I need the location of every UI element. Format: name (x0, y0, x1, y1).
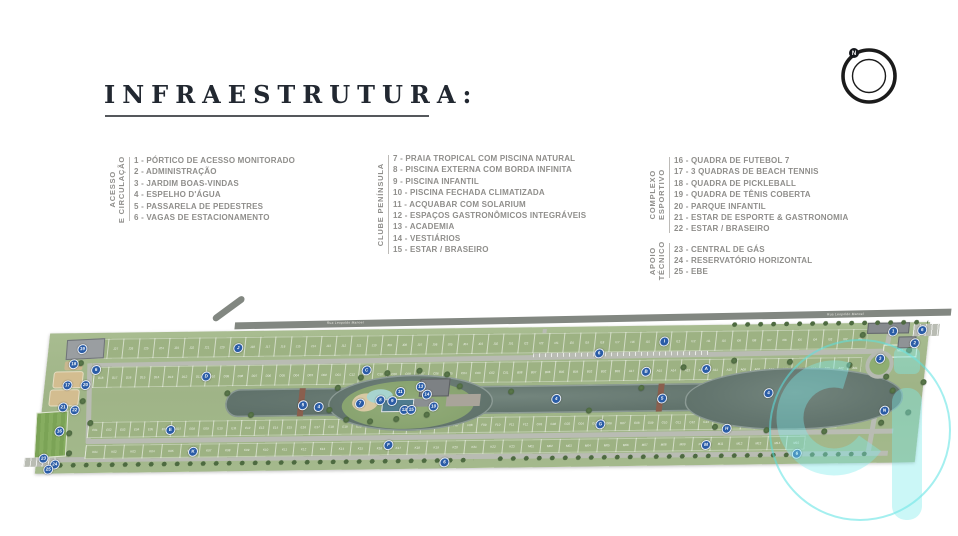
plan-marker-5: 5 (297, 400, 308, 410)
plan-marker-n: N (879, 406, 890, 416)
legend-item: 6 - VAGAS DE ESTACIONAMENTO (134, 212, 295, 223)
plan-marker-17: 17 (62, 380, 73, 390)
plan-marker-d: D (201, 371, 212, 381)
legend-item: 2 - ADMINISTRAÇÃO (134, 166, 295, 177)
plan-marker-23: 23 (38, 454, 49, 464)
legend-group-label: TÉCNICO (657, 241, 666, 280)
plan-marker-6: 6 (91, 365, 102, 375)
plan-marker-20: 20 (80, 380, 91, 390)
plan-marker-m: M (700, 440, 711, 450)
legend-divider (388, 155, 389, 254)
plan-marker-8: 8 (375, 395, 386, 405)
legend-group-label: E CIRCULAÇÃO (117, 156, 126, 223)
plan-marker-e: E (165, 425, 176, 435)
plan-markers: 1236666644455789101112131415161718192021… (23, 294, 927, 474)
legend-group-label: APOIO (648, 247, 657, 275)
legend-item: 23 - CENTRAL DE GÁS (674, 244, 812, 255)
page-title: INFRAESTRUTURA: (104, 80, 478, 109)
plan-marker-h: H (721, 424, 732, 434)
legend-item: 9 - PISCINA INFANTIL (393, 176, 586, 187)
plan-marker-7: 7 (354, 398, 365, 408)
plan-marker-14: 14 (421, 390, 432, 400)
plan-marker-18: 18 (68, 359, 79, 369)
legend-item: 21 - ESTAR DE ESPORTE & GASTRONOMIA (674, 212, 848, 223)
legend-group-acesso: ACESSOE CIRCULAÇÃO 1 - PÓRTICO DE ACESSO… (108, 155, 295, 223)
plan-marker-22: 22 (69, 405, 80, 415)
plan-marker-16: 16 (54, 426, 65, 436)
legend-group-vertical-label: CLUBE PENÍNSULA (376, 153, 385, 256)
plan-marker-21: 21 (58, 402, 69, 412)
legend-item: 11 - ACQUABAR COM SOLARIUM (393, 199, 586, 210)
legend-item: 22 - ESTAR / BRASEIRO (674, 223, 848, 234)
legend-item: 19 - QUADRA DE TÊNIS COBERTA (674, 189, 848, 200)
plan-marker-5: 5 (657, 393, 668, 403)
plan-marker-b: B (641, 367, 652, 377)
legend-item: 20 - PARQUE INFANTIL (674, 201, 848, 212)
plan-marker-6: 6 (791, 449, 802, 459)
legend-item: 17 - 3 QUADRAS DE BEACH TENNIS (674, 166, 848, 177)
legend-items: 23 - CENTRAL DE GÁS24 - RESERVATÓRIO HOR… (674, 241, 812, 280)
legend-group-vertical-label: COMPLEXOESPORTIVO (648, 155, 666, 235)
legend-item: 7 - PRAIA TROPICAL COM PISCINA NATURAL (393, 153, 586, 164)
legend-group-label: ESPORTIVO (657, 169, 666, 220)
legend-item: 14 - VESTIÁRIOS (393, 233, 586, 244)
legend-item: 10 - PISCINA FECHADA CLIMATIZADA (393, 187, 586, 198)
plan-marker-6: 6 (594, 348, 605, 358)
plan-marker-g: G (595, 419, 606, 429)
plan-marker-15: 15 (406, 405, 417, 415)
legend-group-label: COMPLEXO (648, 170, 657, 219)
legend-item: 3 - JARDIM BOAS-VINDAS (134, 178, 295, 189)
legend-item: 8 - PISCINA EXTERNA COM BORDA INFINITA (393, 164, 586, 175)
plan-marker-19: 19 (77, 344, 88, 354)
plan-marker-j: J (233, 343, 244, 353)
plan-marker-f: F (383, 440, 394, 450)
legend-item: 5 - PASSARELA DE PEDESTRES (134, 201, 295, 212)
legend-divider (129, 157, 130, 221)
legend-item: 15 - ESTAR / BRASEIRO (393, 244, 586, 255)
title-underline (105, 115, 429, 117)
legend-group-clube: CLUBE PENÍNSULA 7 - PRAIA TROPICAL COM P… (376, 153, 586, 256)
plan-marker-2: 2 (909, 338, 920, 348)
plan-marker-4: 4 (551, 394, 562, 404)
legend-item: 1 - PÓRTICO DE ACESSO MONITORADO (134, 155, 295, 166)
legend-group-vertical-label: APOIOTÉCNICO (648, 241, 666, 280)
plan-marker-10: 10 (428, 401, 439, 411)
infrastructure-slide: INFRAESTRUTURA: ACESSOE CIRCULAÇÃO 1 - P… (0, 0, 958, 536)
legend-item: 13 - ACADEMIA (393, 221, 586, 232)
legend-item: 4 - ESPELHO D'ÁGUA (134, 189, 295, 200)
plan-marker-11: 11 (395, 387, 406, 397)
legend-divider (669, 157, 670, 233)
legend-item: 25 - EBE (674, 266, 812, 277)
legend-group-label: ACESSO (108, 171, 117, 207)
plan-marker-25: 25 (43, 465, 54, 475)
svg-text:N: N (852, 51, 856, 57)
legend-items: 1 - PÓRTICO DE ACESSO MONITORADO2 - ADMI… (134, 155, 295, 223)
tree-icon (920, 379, 927, 385)
legend-item: 16 - QUADRA DE FUTEBOL 7 (674, 155, 848, 166)
plan-marker-c: C (361, 365, 372, 375)
legend-item: 18 - QUADRA DE PICKLEBALL (674, 178, 848, 189)
legend-divider (669, 243, 670, 278)
plan-marker-k: K (187, 447, 198, 457)
plan-marker-3: 3 (875, 354, 886, 364)
legend-items: 7 - PRAIA TROPICAL COM PISCINA NATURAL8 … (393, 153, 586, 256)
legend-group-vertical-label: ACESSOE CIRCULAÇÃO (108, 155, 126, 223)
plan-marker-9: 9 (387, 396, 398, 406)
legend-item: 12 - ESPAÇOS GASTRONÔMICOS INTEGRÁVEIS (393, 210, 586, 221)
legend-items: 16 - QUADRA DE FUTEBOL 717 - 3 QUADRAS D… (674, 155, 848, 235)
plan-marker-4: 4 (313, 402, 324, 412)
compass-north-icon: N (838, 44, 900, 106)
masterplan: Rua Leopoldo Manoel Rua Leopoldo Manoel … (23, 294, 927, 474)
plan-marker-a: A (701, 364, 712, 374)
plan-marker-i: I (659, 336, 670, 346)
plan-marker-6: 6 (439, 457, 450, 467)
legend-group-apoio: APOIOTÉCNICO 23 - CENTRAL DE GÁS24 - RES… (648, 241, 812, 280)
legend-group-label: CLUBE PENÍNSULA (376, 163, 385, 246)
legend-item: 24 - RESERVATÓRIO HORIZONTAL (674, 255, 812, 266)
legend-group-esportivo: COMPLEXOESPORTIVO 16 - QUADRA DE FUTEBOL… (648, 155, 848, 235)
plan-marker-4: 4 (763, 388, 774, 398)
plan-marker-1: 1 (888, 326, 899, 336)
